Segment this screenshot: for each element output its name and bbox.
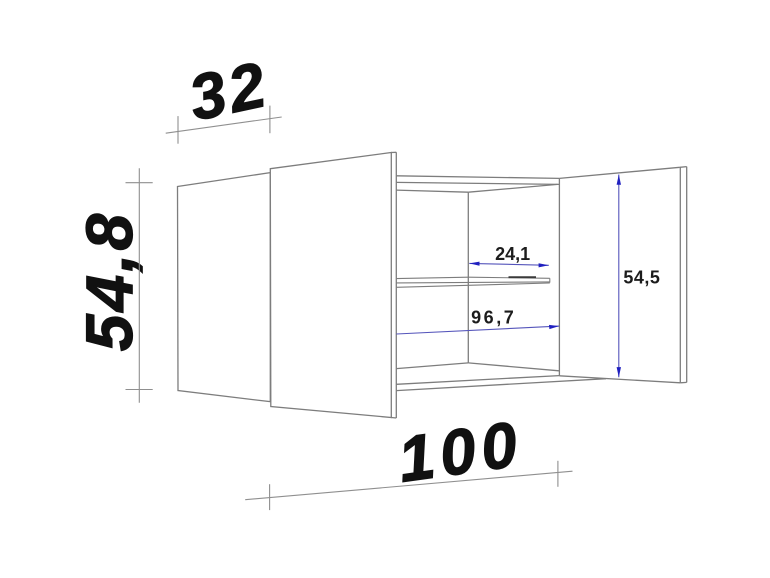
svg-text:54,8: 54,8	[72, 211, 146, 351]
svg-text:96,7: 96,7	[471, 308, 516, 328]
svg-text:54,5: 54,5	[623, 268, 660, 288]
svg-text:24,1: 24,1	[495, 244, 530, 264]
